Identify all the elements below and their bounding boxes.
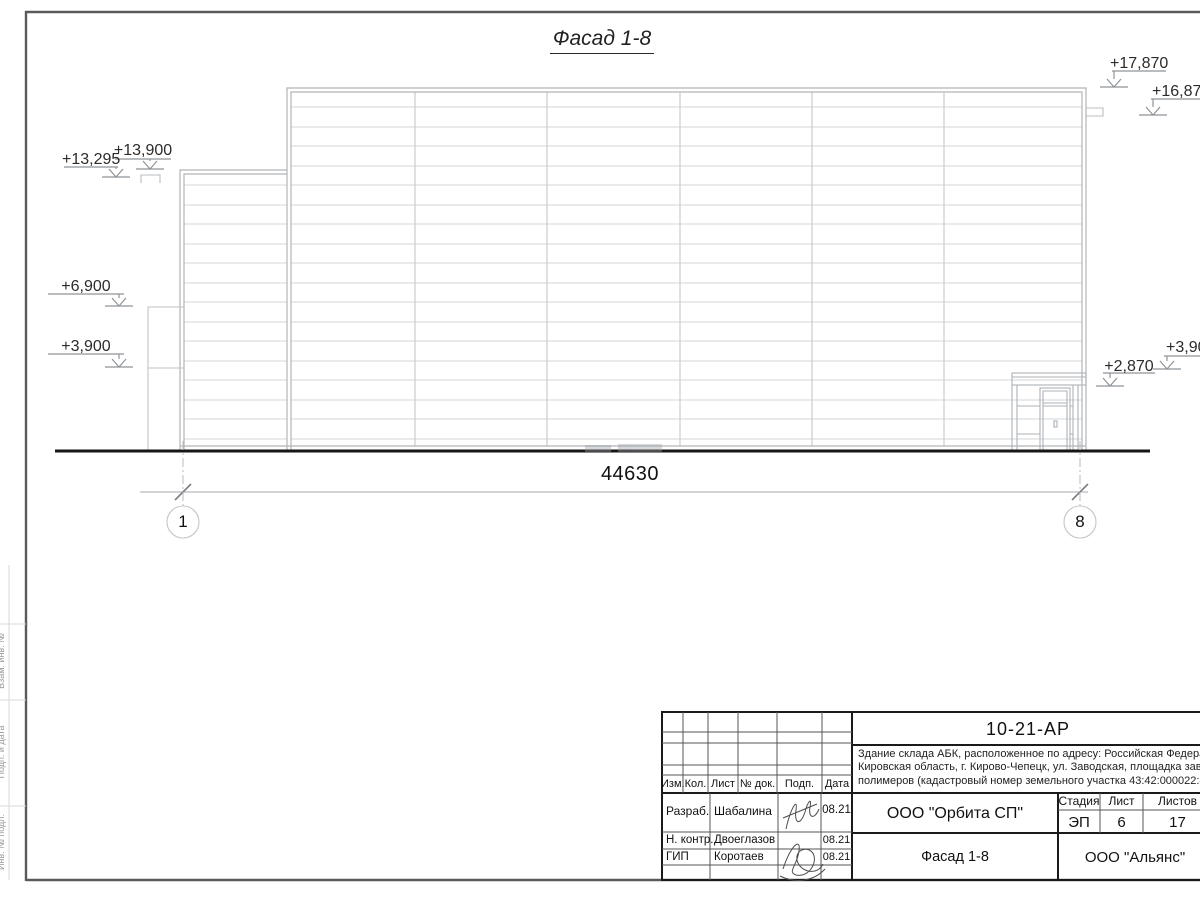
drawing-title: Фасад 1-8 (550, 27, 654, 54)
elevation-mark-symbols (48, 71, 1200, 386)
doc-number: 10-21-АР (852, 713, 1200, 745)
role-nkontr: Н. контр. (666, 834, 712, 846)
door-handle (1054, 421, 1057, 427)
role-gip: ГИП (666, 851, 712, 863)
elevation-label-left-mid: +3,900 (48, 338, 124, 356)
elevation-label-top-right: +16,870 (1152, 83, 1200, 101)
margin-label-podp: Подп. и дата (0, 707, 6, 797)
listov-header: Листов (1143, 793, 1200, 810)
elevation-label-left-scupper: +13,295 (62, 151, 120, 169)
name-razrab: Шабалина (714, 804, 778, 818)
axis-number-1: 1 (167, 512, 199, 532)
role-razrab: Разраб. (666, 804, 710, 818)
date-nkontr: 08.21 (821, 834, 852, 846)
company-name: ООО "Орбита СП" (852, 805, 1058, 823)
description-line-3: полимеров (кадастровый номер земельного … (858, 775, 1200, 788)
signatures (780, 801, 825, 880)
margin-label-vzam: Взам. инв. № (0, 616, 6, 706)
panel-joints-horizontal (184, 107, 1082, 439)
contractor-name: ООО "Альянс" (1058, 849, 1200, 866)
sheet-title: Фасад 1-8 (852, 849, 1058, 865)
axis-number-8: 8 (1064, 512, 1096, 532)
elevation-label-right-mid: +3,900 (1166, 339, 1200, 357)
building-outline (180, 88, 1086, 450)
col-header-podp: Подп. (777, 775, 822, 793)
description-line-2: Кировская область, г. Кирово-Чепецк, ул.… (858, 761, 1200, 774)
list-value: 6 (1100, 814, 1143, 831)
date-razrab: 08.21 (821, 804, 852, 816)
panel-joints-vertical (415, 92, 944, 446)
margin-label-inv: Инв. № подл. (0, 797, 6, 887)
col-header-kol: Кол. (683, 775, 708, 793)
col-header-list: Лист (708, 775, 738, 793)
elevation-label-left-annex: +6,900 (48, 278, 124, 296)
date-gip: 08.21 (821, 851, 852, 863)
annex-left (148, 307, 184, 450)
elevation-label-top-main: +17,870 (1110, 55, 1168, 73)
elevation-label-right-canopy: +2,870 (1102, 358, 1156, 376)
dimension-line (140, 441, 1096, 538)
entrance-porch (1012, 373, 1086, 450)
name-gip: Коротаев (714, 851, 780, 863)
col-header-dok: № док. (738, 775, 777, 793)
stage-value: ЭП (1058, 814, 1100, 831)
list-header: Лист (1100, 793, 1143, 810)
watermark-fragment (585, 444, 662, 452)
stage-header: Стадия (1058, 793, 1100, 810)
description-line-1: Здание склада АБК, расположенное по адре… (858, 748, 1200, 761)
drawing-sheet: Фасад 1-8 +17,870 +16,870 +13,900 +13,29… (0, 0, 1200, 900)
project-description: Здание склада АБК, расположенное по адре… (858, 748, 1200, 788)
col-header-izm: Изм. (661, 775, 683, 793)
elevation-label-left-roof: +13,900 (113, 142, 173, 160)
dimension-total: 44630 (592, 463, 668, 486)
listov-value: 17 (1143, 814, 1200, 831)
col-header-data: Дата (822, 775, 852, 793)
name-nkontr: Двоеглазов (714, 834, 780, 846)
